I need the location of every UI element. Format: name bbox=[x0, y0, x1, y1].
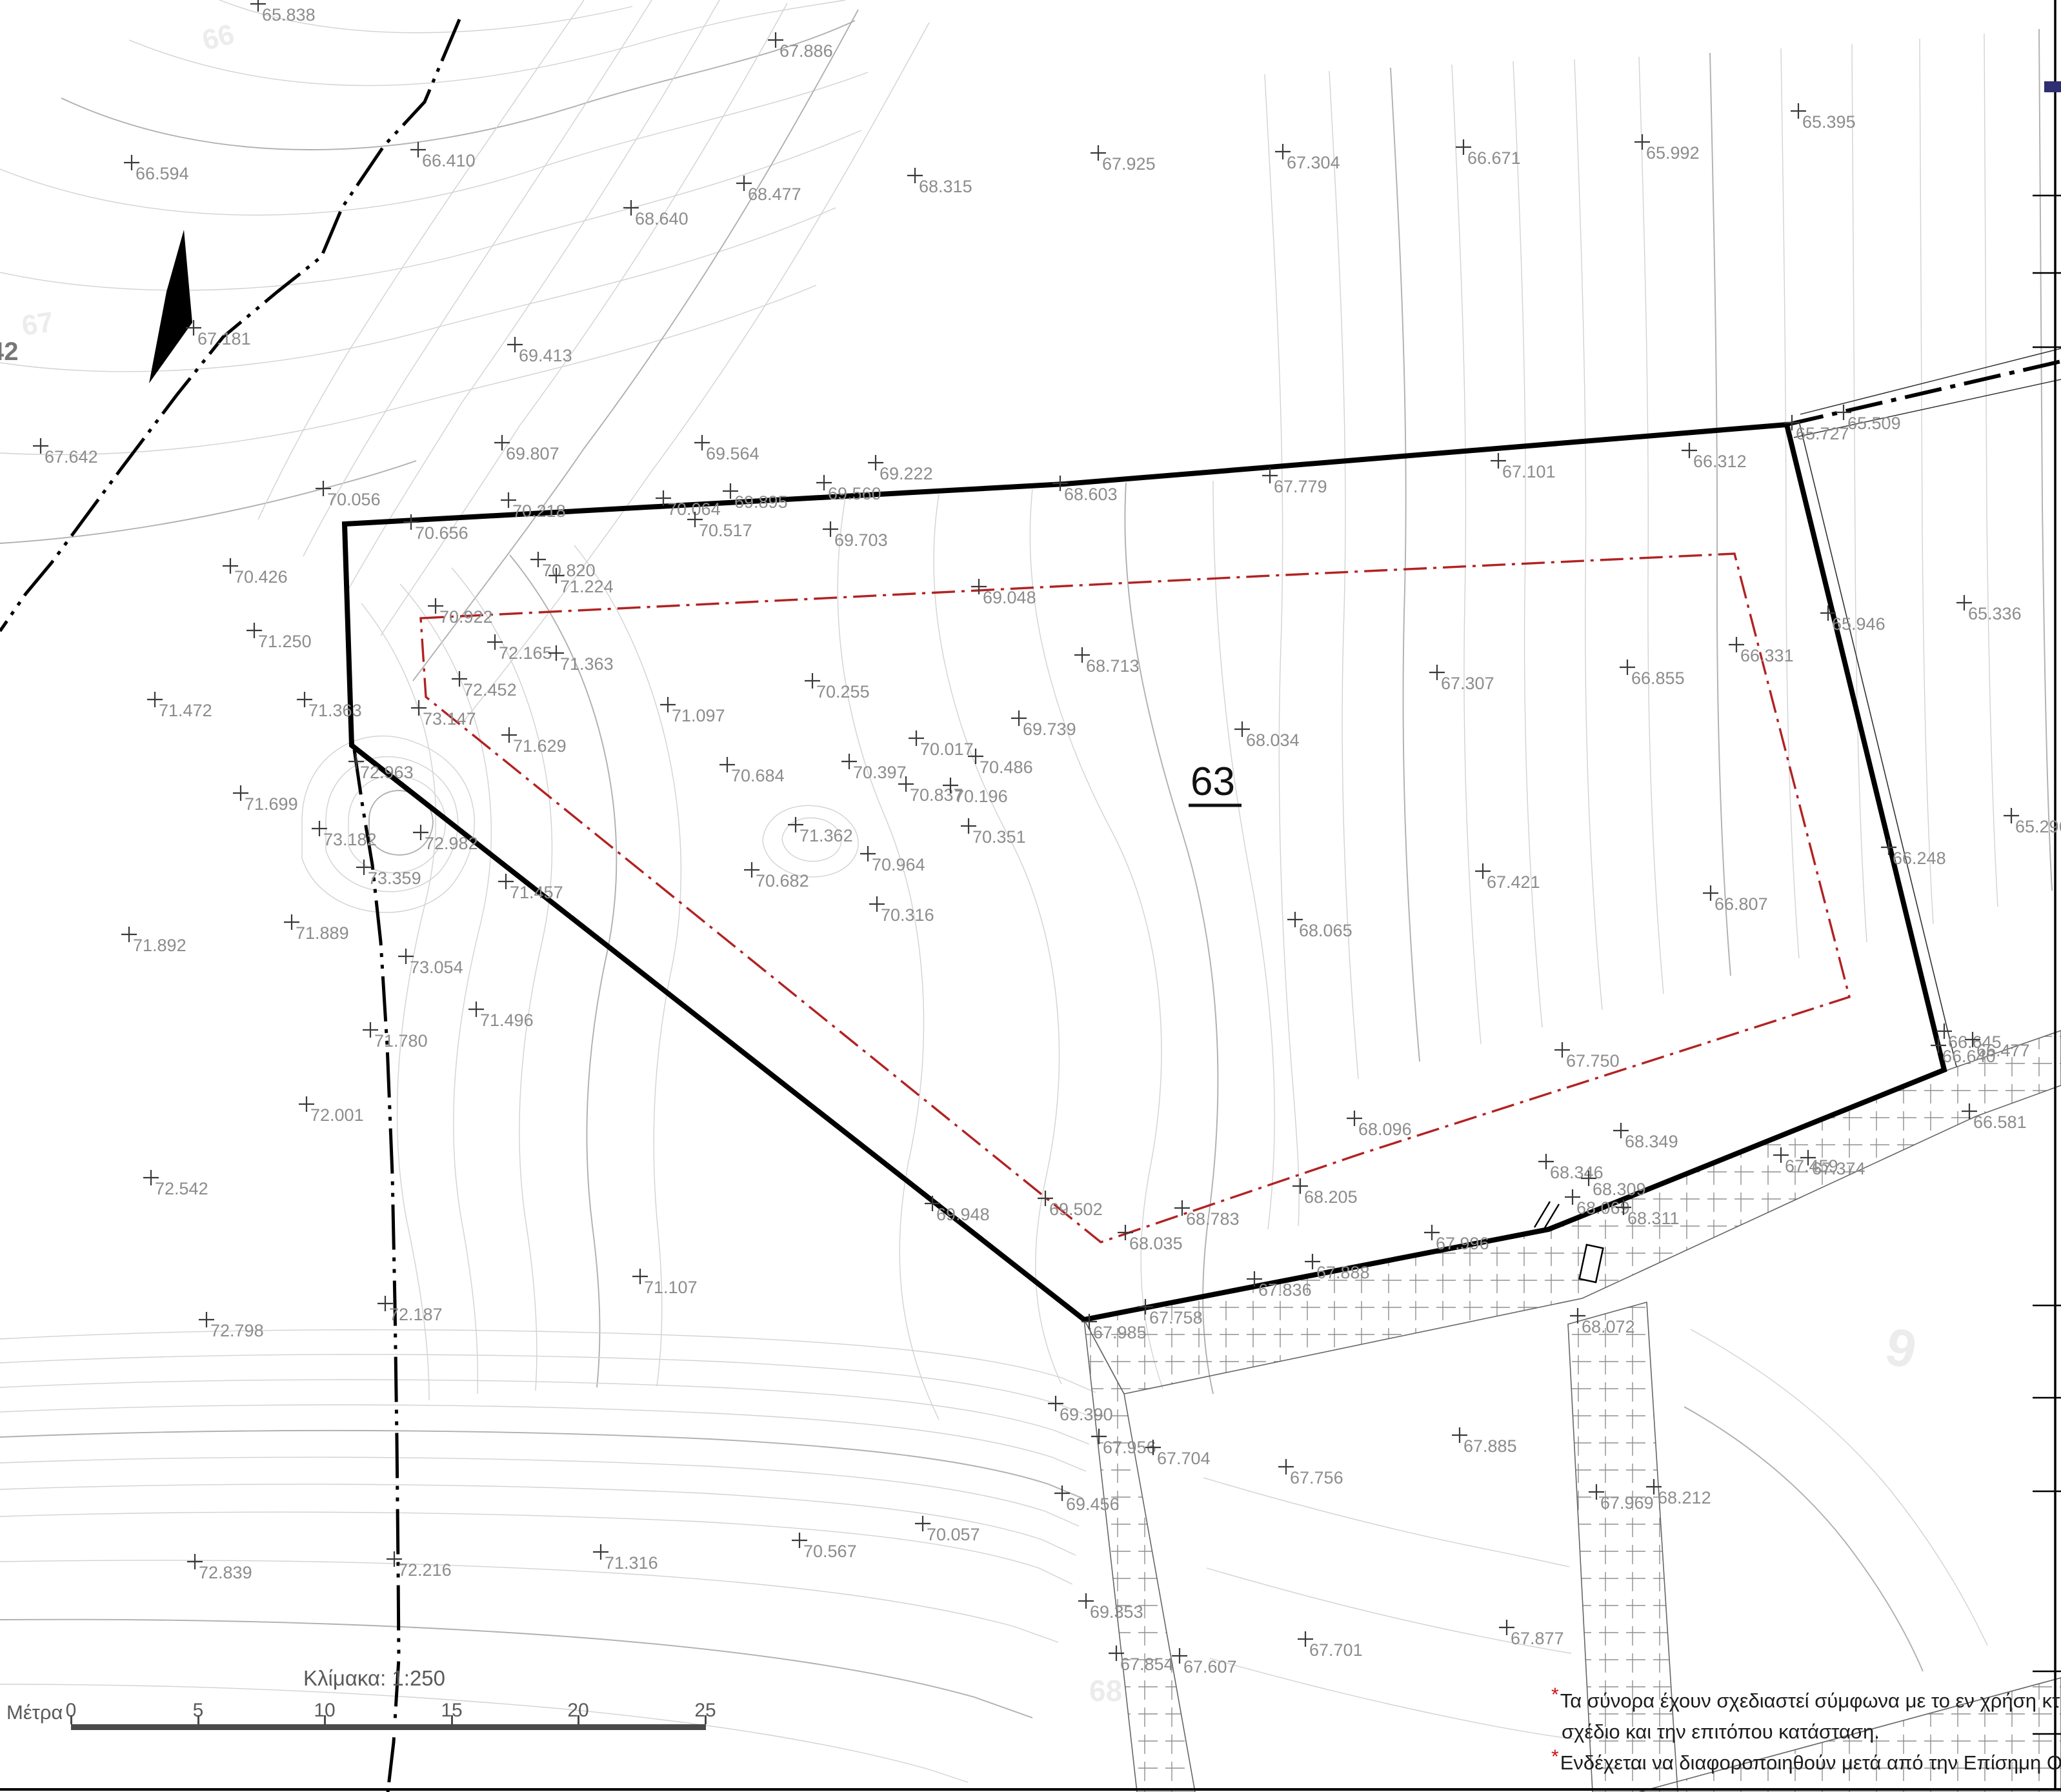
elevation-label: 72.216 bbox=[398, 1560, 452, 1580]
elevation-label: 66.248 bbox=[1893, 849, 1946, 868]
asterisk: * bbox=[1551, 1684, 1559, 1706]
elevation-point: 71.780 bbox=[363, 1022, 428, 1051]
elevation-point: 72.798 bbox=[199, 1312, 264, 1340]
elevation-label: 70.064 bbox=[667, 499, 721, 519]
elevation-label: 72.542 bbox=[155, 1179, 208, 1198]
elevation-label: 67.985 bbox=[1093, 1323, 1147, 1342]
elevation-label: 70.426 bbox=[234, 567, 288, 587]
contour-line bbox=[61, 21, 855, 150]
elevation-point: 70.922 bbox=[428, 598, 493, 627]
contour-line bbox=[0, 285, 816, 455]
contour-line bbox=[1781, 48, 1799, 958]
contour-line bbox=[1710, 53, 1731, 976]
elevation-label: 73.359 bbox=[368, 869, 421, 888]
elevation-label: 66.312 bbox=[1693, 452, 1747, 471]
elevation-label: 71.224 bbox=[560, 577, 614, 596]
scale-tick bbox=[70, 1715, 72, 1724]
elevation-label: 73.054 bbox=[410, 958, 463, 977]
elevation-point: 69.739 bbox=[1011, 710, 1076, 739]
contour-line bbox=[400, 584, 491, 1394]
elevation-point: 71.472 bbox=[147, 692, 212, 720]
contour-line bbox=[1984, 34, 1998, 907]
elevation-point: 66.807 bbox=[1703, 885, 1768, 914]
elevation-label: 68.315 bbox=[919, 177, 972, 196]
elevation-label: 71.780 bbox=[374, 1031, 428, 1051]
road-axis bbox=[354, 750, 399, 1792]
contour-line bbox=[1574, 59, 1602, 1010]
elevation-point: 72.187 bbox=[377, 1296, 443, 1324]
elevation-label: 67.756 bbox=[1290, 1468, 1343, 1487]
elevation-point: 70.351 bbox=[961, 818, 1026, 847]
contour-line bbox=[1391, 68, 1420, 1062]
road-axis bbox=[1787, 361, 2061, 425]
elevation-label: 70.316 bbox=[881, 905, 934, 925]
elevation-point: 70.426 bbox=[223, 558, 288, 587]
elevation-label: 68.783 bbox=[1186, 1209, 1240, 1229]
elevation-point: 70.964 bbox=[860, 846, 925, 874]
elevation-label: 67.885 bbox=[1463, 1436, 1517, 1456]
elevation-point: 71.889 bbox=[284, 914, 349, 943]
elevation-label: 69.703 bbox=[834, 530, 888, 550]
scale-tick bbox=[705, 1715, 707, 1724]
elevation-label: 67.779 bbox=[1274, 477, 1327, 496]
contour-line bbox=[1639, 57, 1664, 994]
elevation-point: 67.925 bbox=[1091, 145, 1156, 174]
faint-contour-label: 66 bbox=[199, 18, 237, 56]
elevation-label: 70.682 bbox=[756, 871, 809, 891]
elevation-point: 68.640 bbox=[623, 200, 689, 228]
elevation-label: 72.001 bbox=[310, 1105, 364, 1125]
elevation-label: 71.892 bbox=[133, 936, 186, 955]
elevation-label: 66.594 bbox=[136, 164, 189, 183]
elevation-label: 70.017 bbox=[920, 740, 974, 759]
contour-line bbox=[1125, 483, 1218, 1394]
elevation-point: 67.304 bbox=[1275, 144, 1340, 172]
elevation-label: 72.187 bbox=[389, 1305, 443, 1324]
elevation-point: 67.307 bbox=[1429, 665, 1494, 693]
elevation-label: 66.477 bbox=[1976, 1041, 2030, 1060]
note-line: *Ενδέχεται να διαφοροποιηθούν μετά από τ… bbox=[1551, 1751, 2061, 1775]
elevation-point: 71.892 bbox=[121, 927, 186, 955]
elevation-point: 67.607 bbox=[1172, 1648, 1237, 1676]
note-text: σχέδιο και την επιτόπου κατάσταση. bbox=[1562, 1720, 1880, 1743]
contour-line bbox=[838, 498, 939, 1420]
elevation-label: 68.603 bbox=[1064, 485, 1118, 504]
elevation-label: 66.807 bbox=[1714, 894, 1768, 914]
elevation-label: 67.101 bbox=[1502, 462, 1556, 481]
elevation-label: 67.888 bbox=[1316, 1263, 1370, 1282]
contour-line bbox=[129, 0, 845, 86]
elevation-point: 67.642 bbox=[33, 438, 98, 467]
elevation-label: 68.072 bbox=[1582, 1317, 1635, 1336]
elevation-point: 68.477 bbox=[736, 176, 801, 204]
contour-line bbox=[1452, 65, 1481, 1044]
elevation-label: 67.854 bbox=[1120, 1655, 1174, 1674]
elevation-label: 69.048 bbox=[983, 588, 1036, 607]
elevation-point: 65.395 bbox=[1791, 103, 1856, 132]
elevation-label: 65.296 bbox=[2015, 817, 2061, 836]
survey-map: 666768965.83867.88666.59466.41068.47768.… bbox=[0, 0, 2061, 1792]
elevation-label: 70.057 bbox=[927, 1525, 980, 1544]
map-canvas: 666768965.83867.88666.59466.41068.47768.… bbox=[0, 0, 2061, 1792]
elevation-label: 69.948 bbox=[936, 1205, 990, 1224]
elevation-label: 70.964 bbox=[872, 855, 925, 874]
elevation-label: 71.362 bbox=[799, 826, 853, 845]
contour-line bbox=[1030, 489, 1163, 1389]
elevation-label: 71.316 bbox=[605, 1553, 658, 1573]
contour-line bbox=[1691, 1329, 1987, 1646]
elevation-label: 68.311 bbox=[1627, 1209, 1680, 1228]
elevation-point: 70.017 bbox=[909, 730, 974, 759]
elevation-label: 65.946 bbox=[1832, 614, 1885, 634]
contour-line bbox=[1852, 44, 1867, 942]
elevation-label: 66.671 bbox=[1467, 148, 1521, 168]
elevation-label: 67.642 bbox=[45, 447, 98, 467]
elevation-point: 73.147 bbox=[411, 700, 476, 729]
elevation-point: 70.684 bbox=[719, 757, 785, 785]
elevation-label: 73.147 bbox=[423, 709, 476, 729]
scale-tick bbox=[451, 1715, 453, 1724]
elevation-label: 70.056 bbox=[327, 490, 381, 509]
note-line: σχέδιο και την επιτόπου κατάσταση. bbox=[1551, 1720, 2061, 1744]
elevation-point: 70.397 bbox=[841, 754, 907, 782]
elevation-point: 68.349 bbox=[1613, 1123, 1678, 1151]
elevation-point: 67.779 bbox=[1262, 468, 1327, 496]
elevation-label: 67.304 bbox=[1287, 153, 1340, 172]
contour-line bbox=[0, 1512, 1072, 1584]
elevation-point: 66.331 bbox=[1729, 637, 1794, 665]
elevation-label: 65.336 bbox=[1968, 604, 2022, 623]
elevation-label: 72.452 bbox=[463, 680, 517, 700]
elevation-point: 72.165 bbox=[487, 634, 552, 663]
elevation-label: 70.255 bbox=[816, 682, 870, 701]
elevation-point: 67.756 bbox=[1278, 1459, 1343, 1487]
elevation-point: 69.048 bbox=[971, 579, 1036, 607]
elevation-label: 69.353 bbox=[1090, 1602, 1143, 1622]
elevation-label: 65.509 bbox=[1847, 414, 1901, 433]
elevation-point: 67.181 bbox=[186, 320, 251, 348]
contour-line bbox=[1213, 481, 1274, 1229]
elevation-label: 71.363 bbox=[560, 654, 614, 674]
contour-line bbox=[0, 72, 868, 215]
elevation-label: 70.567 bbox=[803, 1542, 857, 1561]
elevation-label: 67.877 bbox=[1511, 1629, 1564, 1648]
elevation-label: 65.727 bbox=[1796, 424, 1849, 443]
contour-line bbox=[0, 1484, 1076, 1555]
faint-contour-label: 68 bbox=[1089, 1674, 1122, 1707]
elevation-label: 68.212 bbox=[1658, 1488, 1711, 1507]
elevation-label: 70.684 bbox=[731, 766, 785, 785]
elevation-label: 66.331 bbox=[1740, 646, 1794, 665]
elevation-label: 65.992 bbox=[1646, 143, 1700, 163]
elevation-label: 67.374 bbox=[1812, 1159, 1865, 1178]
elevation-point: 68.205 bbox=[1292, 1178, 1358, 1207]
elevation-point: 66.671 bbox=[1456, 139, 1521, 168]
elevation-label: 67.421 bbox=[1487, 872, 1540, 892]
elevation-point: 72.839 bbox=[187, 1554, 252, 1582]
contour-line bbox=[0, 1560, 1058, 1642]
elevation-point: 69.502 bbox=[1038, 1191, 1103, 1219]
scale-bar: Κλίμακα: 1:250 Μέτρα 0 5 10 15 20 25 bbox=[0, 1658, 761, 1749]
elevation-point: 70.057 bbox=[915, 1516, 980, 1544]
elevation-label: 72.963 bbox=[360, 763, 414, 782]
elevation-label: 69.502 bbox=[1049, 1200, 1103, 1219]
contour-line bbox=[461, 23, 929, 724]
contour-line bbox=[0, 208, 836, 372]
north-arrow-icon bbox=[149, 230, 192, 383]
contour-line bbox=[0, 1405, 1086, 1471]
scale-tick bbox=[324, 1715, 326, 1724]
elevation-point: 71.699 bbox=[233, 785, 298, 814]
elevation-label: 69.739 bbox=[1023, 720, 1076, 739]
elevation-point: 70.056 bbox=[316, 481, 381, 509]
elevation-point: 72.001 bbox=[299, 1096, 364, 1125]
elevation-point: 68.034 bbox=[1234, 721, 1300, 750]
elevation-point: 68.035 bbox=[1118, 1225, 1183, 1253]
contour-line bbox=[0, 1330, 1096, 1393]
contour-line bbox=[1684, 1407, 1923, 1671]
elevation-point: 70.316 bbox=[869, 896, 934, 925]
elevation-point: 66.594 bbox=[124, 155, 189, 183]
elevation-label: 66.410 bbox=[422, 151, 476, 170]
elevation-label: 71.889 bbox=[296, 923, 349, 943]
elevation-label: 71.496 bbox=[480, 1011, 534, 1030]
scale-tick bbox=[578, 1715, 579, 1724]
elevation-point: 67.701 bbox=[1298, 1631, 1363, 1660]
elevation-label: 71.629 bbox=[513, 736, 567, 756]
elevation-point: 71.629 bbox=[501, 727, 567, 756]
road-edge bbox=[1799, 421, 1956, 1067]
elevation-label: 71.097 bbox=[672, 706, 725, 725]
elevation-label: 70.486 bbox=[980, 758, 1033, 777]
elevation-label: 69.895 bbox=[734, 492, 788, 512]
elevation-label: 70.196 bbox=[954, 787, 1008, 806]
elevation-label: 72.165 bbox=[499, 643, 552, 663]
elevation-label: 71.472 bbox=[159, 701, 212, 720]
elevation-point: 66.312 bbox=[1682, 443, 1747, 471]
elevation-point: 71.250 bbox=[246, 623, 312, 651]
road-axis bbox=[0, 19, 459, 631]
elevation-label: 68.035 bbox=[1129, 1234, 1183, 1253]
elevation-point: 67.750 bbox=[1554, 1042, 1620, 1071]
elevation-label: 67.925 bbox=[1102, 154, 1156, 174]
contour-line bbox=[1920, 39, 1933, 924]
elevation-point: 67.996 bbox=[1424, 1225, 1489, 1253]
elevation-point: 66.855 bbox=[1620, 659, 1685, 688]
elevation-point: 72.542 bbox=[143, 1170, 208, 1198]
elevation-label: 67.307 bbox=[1441, 674, 1494, 693]
elevation-label: 68.477 bbox=[748, 185, 801, 204]
elevation-label: 71.363 bbox=[308, 701, 362, 720]
elevation-label: 69.560 bbox=[828, 484, 881, 503]
contour-line bbox=[510, 555, 616, 1387]
elevation-label: 71.699 bbox=[245, 794, 298, 814]
elevation-point: 71.362 bbox=[788, 817, 853, 845]
elevation-point: 71.107 bbox=[632, 1269, 698, 1297]
elevation-point: 71.097 bbox=[660, 697, 725, 725]
elevation-label: 68.349 bbox=[1625, 1132, 1678, 1151]
elevation-point: 70.486 bbox=[968, 749, 1033, 777]
elevation-label: 71.457 bbox=[510, 883, 563, 902]
elevation-label: 67.886 bbox=[779, 41, 833, 61]
elevation-label: 68.034 bbox=[1246, 730, 1300, 750]
elevation-point: 71.316 bbox=[593, 1544, 658, 1573]
contour-line bbox=[303, 0, 652, 556]
elevation-point: 71.457 bbox=[498, 874, 563, 902]
adjacent-parcel-number: 42 bbox=[0, 337, 19, 366]
elevation-label: 69.413 bbox=[519, 346, 572, 365]
contour-line bbox=[2039, 29, 2052, 891]
elevation-point: 68.096 bbox=[1347, 1111, 1412, 1139]
elevation-point: 65.336 bbox=[1956, 595, 2022, 623]
elevation-point: 70.682 bbox=[744, 862, 809, 891]
elevation-label: 67.704 bbox=[1157, 1449, 1211, 1468]
parcel-number-label: 63 bbox=[1191, 760, 1235, 804]
elevation-label: 69.222 bbox=[880, 464, 933, 483]
elevation-label: 68.065 bbox=[1299, 921, 1352, 940]
elevation-label: 65.395 bbox=[1802, 112, 1856, 132]
elevation-label: 67.750 bbox=[1566, 1051, 1620, 1071]
elevation-point: 68.065 bbox=[1287, 912, 1352, 940]
faint-contour-label: 67 bbox=[20, 307, 55, 342]
elevation-point: 65.992 bbox=[1634, 134, 1700, 163]
legend-color-chip bbox=[2044, 81, 2061, 92]
elevation-label: 66.581 bbox=[1973, 1112, 2027, 1132]
scale-caption: Κλίμακα: 1:250 bbox=[213, 1666, 536, 1691]
elevation-point: 67.886 bbox=[768, 32, 833, 61]
elevation-label: 67.701 bbox=[1309, 1640, 1363, 1660]
elevation-label: 71.250 bbox=[258, 632, 312, 651]
contour-line bbox=[258, 0, 584, 519]
elevation-label: 69.564 bbox=[706, 444, 759, 463]
elevation-point: 66.410 bbox=[410, 142, 476, 170]
elevation-point: 70.837 bbox=[898, 776, 963, 805]
elevation-point: 67.877 bbox=[1499, 1620, 1564, 1648]
elevation-label: 65.838 bbox=[262, 5, 316, 25]
elevation-label: 68.205 bbox=[1304, 1187, 1358, 1207]
elevation-label: 72.798 bbox=[210, 1321, 264, 1340]
elevation-label: 70.517 bbox=[699, 521, 752, 540]
elevation-label: 67.607 bbox=[1183, 1657, 1237, 1676]
elevation-label: 67.996 bbox=[1436, 1234, 1489, 1253]
notes-block: *Τα σύνορα έχουν σχεδιαστεί σύμφωνα με τ… bbox=[1551, 1689, 2061, 1782]
elevation-point: 70.567 bbox=[792, 1533, 857, 1561]
contour-line bbox=[1203, 1478, 1569, 1567]
elevation-point: 69.895 bbox=[723, 483, 788, 512]
note-text: Ενδέχεται να διαφοροποιηθούν μετά από τη… bbox=[1560, 1751, 2061, 1774]
elevation-point: 65.838 bbox=[250, 0, 316, 25]
elevation-label: 72.839 bbox=[199, 1563, 252, 1582]
elevation-label: 68.713 bbox=[1086, 656, 1140, 676]
elevation-point: 67.101 bbox=[1491, 453, 1556, 481]
elevation-point: 72.216 bbox=[387, 1551, 452, 1580]
scale-tick bbox=[197, 1715, 199, 1724]
elevation-label: 73.182 bbox=[323, 830, 377, 849]
elevation-label: 69.807 bbox=[506, 444, 559, 463]
elevation-label: 69.456 bbox=[1066, 1495, 1120, 1514]
elevation-label: 72.982 bbox=[425, 834, 478, 853]
elevation-point: 71.363 bbox=[548, 645, 614, 674]
elevation-label: 67.969 bbox=[1600, 1493, 1654, 1513]
elevation-label: 70.351 bbox=[972, 827, 1026, 847]
elevation-point: 69.413 bbox=[507, 337, 572, 365]
asterisk: * bbox=[1551, 1746, 1559, 1767]
elevation-point: 73.054 bbox=[398, 949, 463, 977]
scale-bar-line bbox=[71, 1724, 706, 1730]
elevation-point: 68.315 bbox=[907, 168, 972, 196]
elevation-label: 70.922 bbox=[439, 607, 493, 627]
elevation-point: 65.296 bbox=[2004, 808, 2061, 836]
elevation-point: 71.496 bbox=[468, 1002, 534, 1030]
elevation-point: 72.452 bbox=[452, 671, 517, 700]
road-edge bbox=[1800, 348, 2061, 414]
elevation-point: 73.359 bbox=[356, 860, 421, 888]
elevation-label: 67.758 bbox=[1149, 1308, 1203, 1327]
faint-contour-label: 9 bbox=[1880, 1317, 1922, 1380]
elevation-point: 69.703 bbox=[823, 521, 888, 550]
elevation-label: 68.309 bbox=[1593, 1180, 1646, 1199]
contour-line bbox=[348, 775, 445, 872]
contour-line bbox=[413, 10, 858, 681]
note-text: Τα σύνορα έχουν σχεδιαστεί σύμφωνα με το… bbox=[1560, 1689, 2061, 1712]
elevation-label: 71.107 bbox=[644, 1278, 698, 1297]
elevation-point: 67.885 bbox=[1452, 1427, 1517, 1456]
elevation-label: 70.218 bbox=[512, 501, 566, 521]
elevation-label: 68.640 bbox=[635, 209, 689, 228]
contour-line bbox=[1210, 1658, 1574, 1739]
elevation-point: 70.255 bbox=[805, 673, 870, 701]
elevation-point: 69.222 bbox=[868, 455, 933, 483]
elevation-point: 68.713 bbox=[1074, 647, 1140, 676]
elevation-label: 69.390 bbox=[1060, 1405, 1113, 1424]
elevation-label: 66.855 bbox=[1631, 669, 1685, 688]
contour-line bbox=[0, 1431, 1083, 1498]
note-line: *Τα σύνορα έχουν σχεδιαστεί σύμφωνα με τ… bbox=[1551, 1689, 2061, 1713]
contour-line bbox=[1265, 74, 1299, 1226]
elevation-label: 67.181 bbox=[197, 329, 251, 348]
elevation-label: 68.096 bbox=[1358, 1120, 1412, 1139]
elevation-label: 67.836 bbox=[1258, 1280, 1312, 1300]
elevation-point: 69.564 bbox=[694, 435, 759, 463]
elevation-label: 70.656 bbox=[415, 523, 468, 543]
elevation-label: 70.397 bbox=[853, 763, 907, 782]
